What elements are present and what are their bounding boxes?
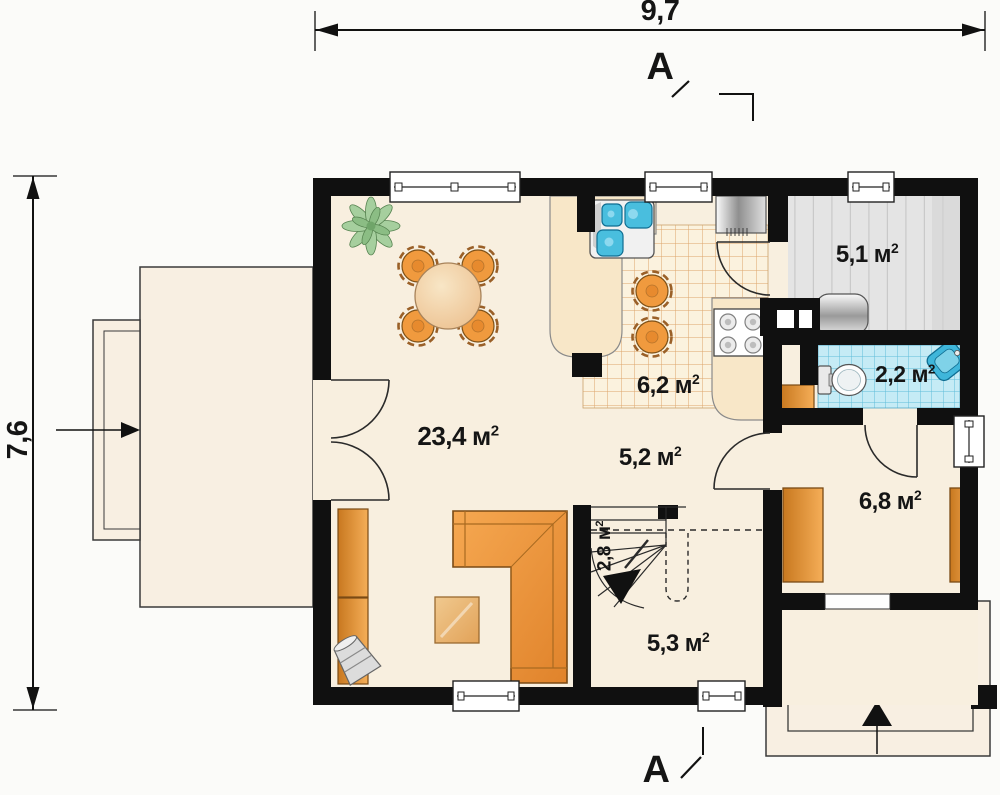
window	[848, 172, 894, 202]
room-area: 2,8	[594, 546, 615, 571]
height-value: 7,6	[2, 421, 34, 460]
room-label-entry: 5,3м2	[628, 630, 728, 656]
room-area: 5,3	[647, 630, 679, 657]
unit-exponent: 2	[702, 629, 709, 645]
section-letter: A	[647, 46, 674, 88]
unit-exponent: 2	[594, 521, 606, 527]
room-area: 2,2	[875, 361, 905, 387]
unit-symbol: м	[594, 527, 615, 541]
floor-plan-drawing	[0, 0, 1000, 795]
unit-exponent: 2	[674, 443, 681, 459]
plant-icon	[342, 197, 400, 255]
room-label-kitchen: 6,2м2	[618, 372, 718, 398]
unit-exponent: 2	[491, 422, 499, 439]
window	[954, 416, 984, 467]
section-mark-top: A	[638, 48, 682, 88]
stove	[714, 309, 766, 356]
room-label-vestibule: 6,8м2	[840, 488, 940, 514]
unit-symbol: м	[472, 421, 491, 451]
room-label-utility: 5,1м2	[817, 241, 917, 267]
unit-exponent: 2	[692, 371, 699, 387]
unit-exponent: 2	[928, 361, 935, 376]
height-dimension-label: 7,6	[3, 395, 33, 485]
section-mark-bottom: A	[634, 751, 678, 791]
room-label-living: 23,4м2	[398, 423, 518, 450]
kitchen-sink	[590, 200, 654, 258]
room-area: 6,2	[637, 372, 669, 399]
window	[390, 172, 520, 202]
room-area: 5,2	[619, 444, 651, 471]
unit-exponent: 2	[914, 487, 921, 503]
entrance-door	[825, 594, 890, 609]
unit-exponent: 2	[891, 240, 898, 256]
fridge	[716, 196, 766, 236]
window	[698, 681, 745, 711]
window	[645, 172, 712, 202]
terrace	[56, 267, 313, 607]
unit-symbol: м	[685, 630, 702, 657]
width-dimension-label: 9,7	[615, 0, 705, 26]
window	[453, 681, 519, 711]
room-label-bathroom: 2,2м2	[855, 362, 955, 386]
unit-symbol: м	[912, 361, 929, 387]
unit-symbol: м	[657, 444, 674, 471]
section-letter: A	[643, 749, 670, 791]
unit-symbol: м	[874, 241, 891, 268]
niche-cabinet	[781, 385, 814, 412]
room-area: 5,1	[836, 241, 868, 268]
room-label-stairs: 2,8м2	[595, 510, 619, 582]
dining-table	[415, 263, 481, 329]
width-value: 9,7	[641, 0, 680, 27]
coffee-table	[435, 597, 479, 643]
room-area: 6,8	[859, 488, 891, 515]
room-area: 23,4	[417, 421, 466, 451]
floor-plan: 9,7 7,6 A A 23,4м2 6,2м2 5,1м2 2,2м2 5,2…	[0, 0, 1000, 795]
unit-symbol: м	[897, 488, 914, 515]
room-label-hallway: 5,2м2	[600, 444, 700, 470]
unit-symbol: м	[675, 372, 692, 399]
